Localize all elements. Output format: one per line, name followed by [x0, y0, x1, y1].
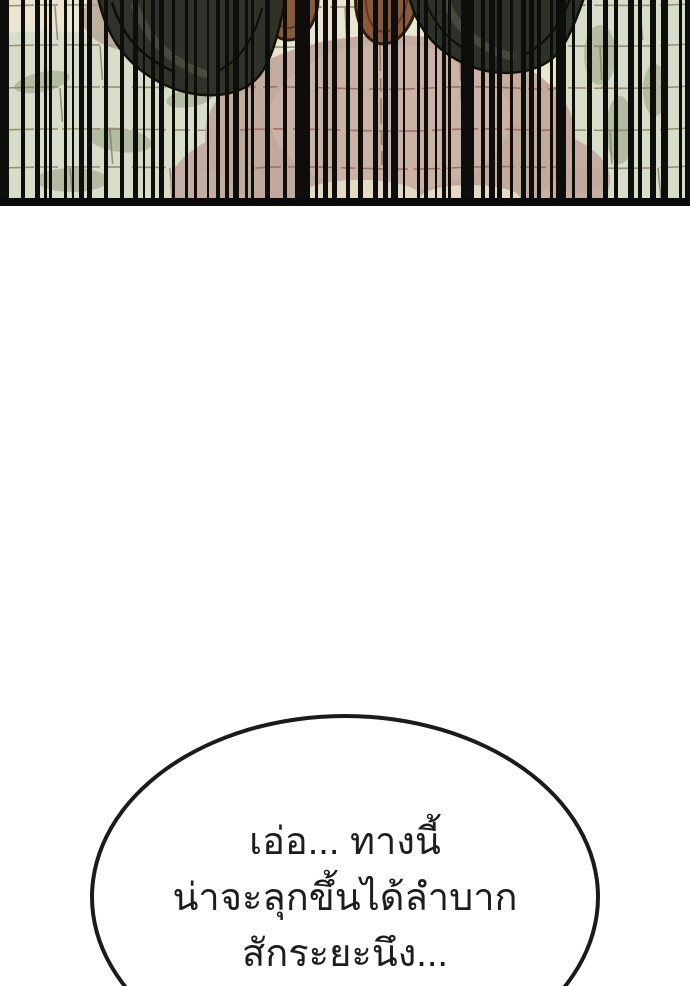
- speed-line: [383, 0, 389, 198]
- speed-line: [185, 0, 189, 198]
- speed-line: [417, 0, 420, 198]
- speech-line-3: สักระยะนึง...: [94, 926, 596, 982]
- speed-line: [35, 0, 40, 198]
- speed-line: [265, 0, 270, 198]
- speech-line-1: เอ่อ... ทางนี้: [94, 814, 596, 870]
- speed-line: [572, 0, 576, 198]
- speed-line: [461, 0, 474, 198]
- speed-line: [603, 0, 608, 198]
- speed-line: [638, 0, 642, 198]
- speed-line: [358, 0, 363, 198]
- speed-line: [346, 0, 350, 198]
- speed-line: [283, 0, 288, 198]
- speed-line: [481, 0, 486, 198]
- speed-line: [537, 0, 542, 198]
- speed-line: [510, 0, 513, 198]
- action-panel: [0, 0, 690, 206]
- speed-line: [216, 0, 220, 198]
- speed-line: [21, 0, 25, 198]
- speed-line: [685, 0, 690, 198]
- speed-line: [550, 0, 553, 198]
- speed-line: [373, 0, 378, 198]
- speed-line: [435, 0, 438, 198]
- speed-line: [679, 0, 683, 198]
- speed-line: [315, 0, 318, 198]
- speed-line: [391, 0, 397, 198]
- speed-line: [529, 0, 534, 198]
- speed-line: [424, 0, 429, 198]
- speed-line: [323, 0, 327, 198]
- speech-bubble-text: เอ่อ... ทางนี้ น่าจะลุกขึ้นได้ลำบาก สักร…: [94, 814, 596, 982]
- speed-line: [251, 0, 253, 198]
- speed-line: [151, 0, 155, 198]
- speed-line: [332, 0, 337, 198]
- speed-line: [489, 0, 495, 198]
- speed-lines: [0, 0, 690, 198]
- comic-page: เอ่อ... ทางนี้ น่าจะลุกขึ้นได้ลำบาก สักร…: [0, 0, 690, 986]
- speed-line: [556, 0, 566, 198]
- speed-line: [521, 0, 526, 198]
- speed-line: [172, 0, 175, 198]
- speed-line: [64, 0, 67, 198]
- speed-line: [72, 0, 75, 198]
- speech-line-2: น่าจะลุกขึ้นได้ลำบาก: [94, 870, 596, 926]
- speech-bubble: เอ่อ... ทางนี้ น่าจะลุกขึ้นได้ลำบาก สักร…: [90, 714, 600, 986]
- speed-line: [159, 0, 164, 198]
- white-gutter: [0, 206, 690, 714]
- speed-line: [0, 0, 9, 198]
- speed-line: [49, 0, 52, 198]
- speed-line: [79, 0, 84, 198]
- speed-line: [587, 0, 593, 198]
- speed-line: [661, 0, 667, 198]
- speed-line: [403, 0, 405, 198]
- speed-line: [87, 0, 92, 198]
- speed-line: [104, 0, 108, 198]
- speed-line: [628, 0, 634, 198]
- speed-line: [295, 0, 310, 198]
- speed-line: [194, 0, 197, 198]
- speed-line: [44, 0, 47, 198]
- speed-line: [133, 0, 138, 198]
- speed-line: [442, 0, 445, 198]
- speed-line: [614, 0, 619, 198]
- panel-bottom-border: [0, 198, 690, 206]
- speed-line: [207, 0, 209, 198]
- speed-line: [448, 0, 451, 198]
- speed-line: [120, 0, 123, 198]
- speed-line: [245, 0, 247, 198]
- speed-line: [225, 0, 229, 198]
- speed-line: [650, 0, 656, 198]
- speed-line: [143, 0, 146, 198]
- speed-line: [497, 0, 502, 198]
- speed-line: [233, 0, 239, 198]
